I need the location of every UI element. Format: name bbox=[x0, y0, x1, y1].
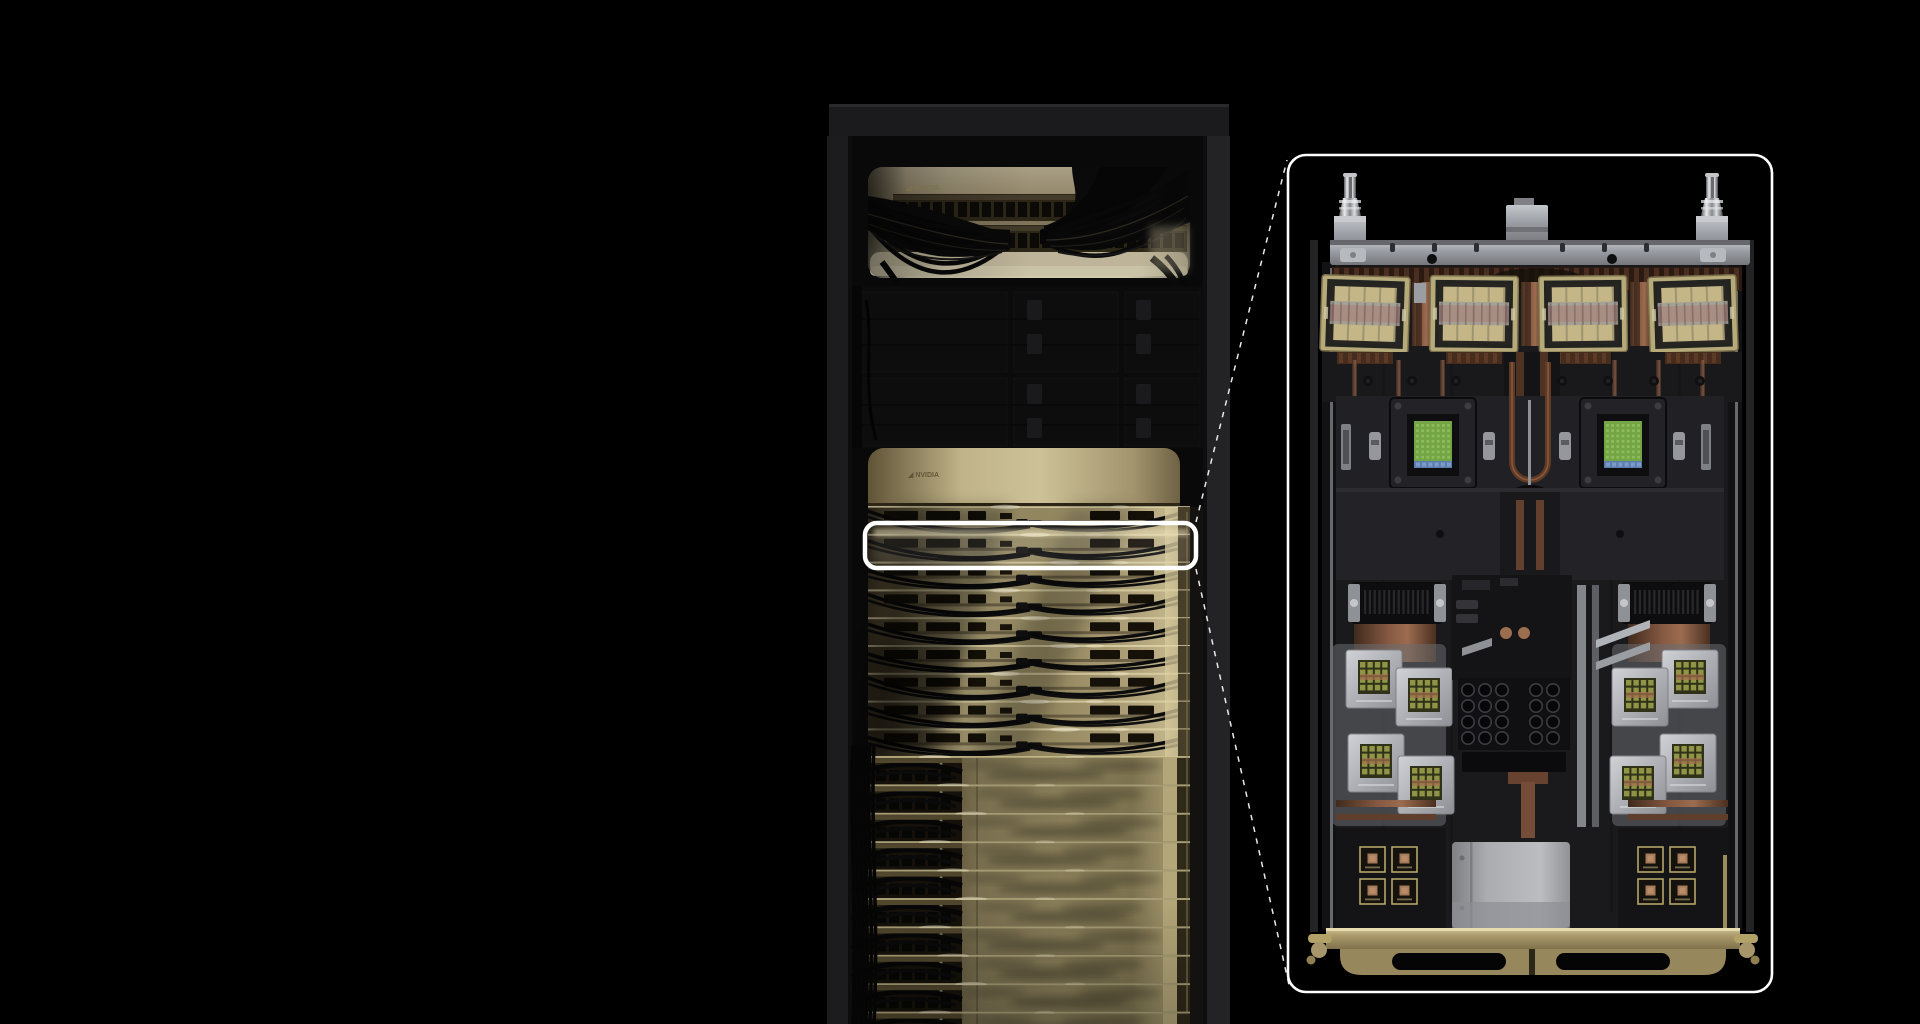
svg-text:◢ NVIDIA: ◢ NVIDIA bbox=[907, 472, 939, 479]
svg-text:◢ NVIDIA: ◢ NVIDIA bbox=[905, 183, 940, 192]
